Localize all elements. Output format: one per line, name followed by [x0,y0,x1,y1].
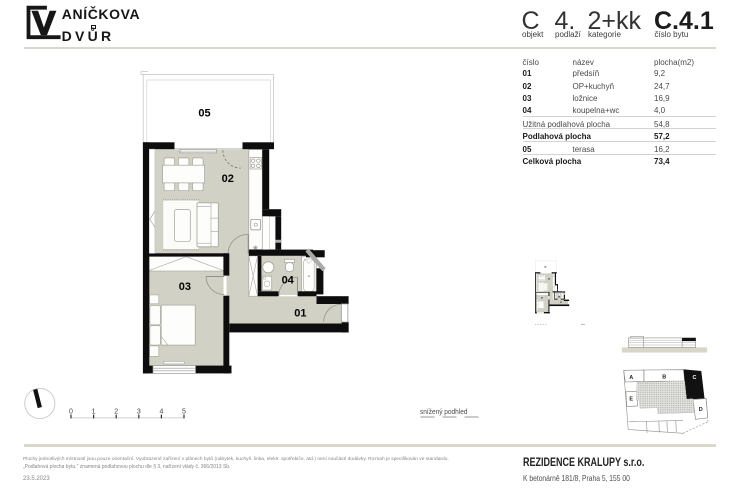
svg-text:5: 5 [182,408,186,415]
svg-text:03: 03 [179,281,191,293]
svg-text:01: 01 [294,308,306,320]
svg-text:D: D [699,407,703,413]
svg-text:05: 05 [198,107,210,119]
svg-text:A: A [629,375,633,381]
svg-text:B: B [662,375,666,381]
svg-text:02: 02 [222,173,234,185]
svg-text:0: 0 [69,408,73,415]
svg-text:04: 04 [282,275,295,287]
svg-text:2: 2 [114,408,118,415]
svg-text:3: 3 [137,408,141,415]
svg-text:1: 1 [92,408,96,415]
svg-text:E: E [629,397,633,403]
svg-text:4: 4 [159,408,163,415]
svg-text:C: C [693,375,697,381]
